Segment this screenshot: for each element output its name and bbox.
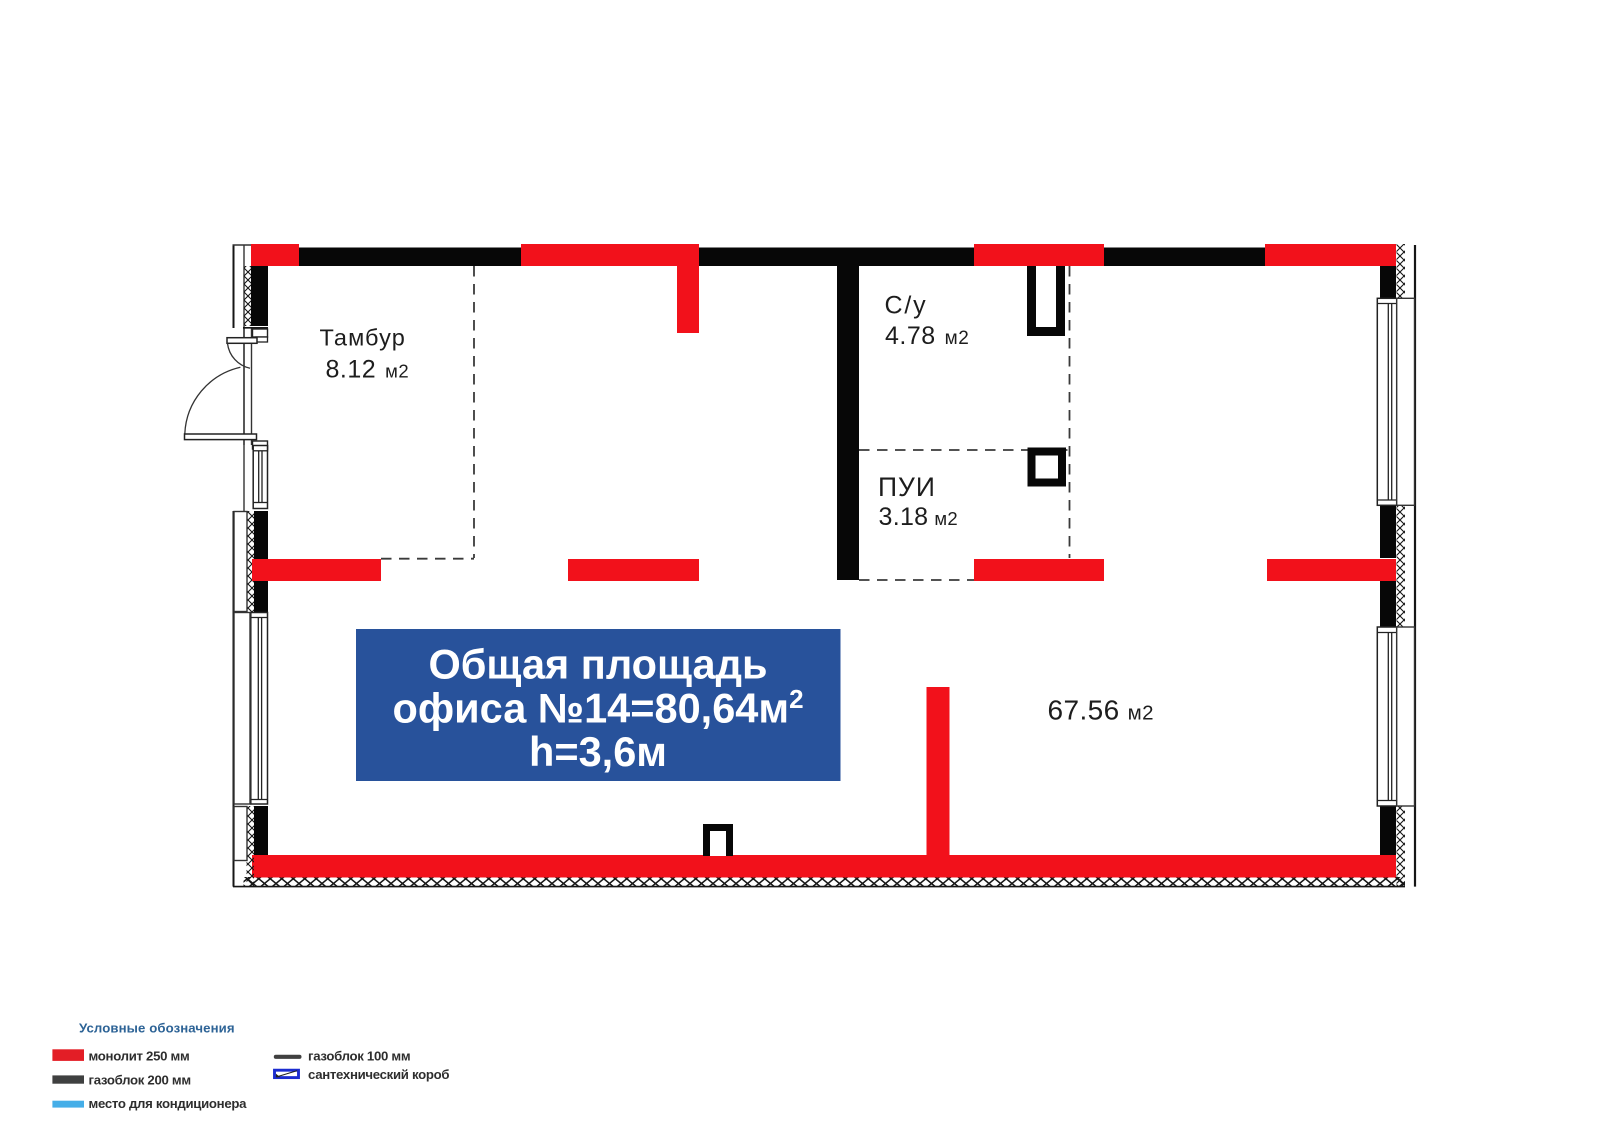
svg-text:монолит 250 мм: монолит 250 мм	[89, 1049, 190, 1064]
svg-text:3.18м2: 3.18м2	[879, 503, 958, 531]
svg-text:Тамбур: Тамбур	[320, 325, 406, 351]
svg-text:С/у: С/у	[885, 292, 928, 320]
svg-text:h=3,6м: h=3,6м	[529, 728, 667, 775]
svg-text:сантехнический короб: сантехнический короб	[308, 1067, 449, 1082]
svg-text:место для кондиционера: место для кондиционера	[89, 1096, 248, 1111]
svg-text:ПУИ: ПУИ	[878, 472, 936, 502]
svg-text:газоблок 100 мм: газоблок 100 мм	[308, 1049, 410, 1064]
svg-text:газоблок 200 мм: газоблок 200 мм	[89, 1073, 191, 1088]
svg-text:офиса №14=80,64м2: офиса №14=80,64м2	[392, 684, 803, 732]
svg-text:Условные обозначения: Условные обозначения	[79, 1021, 235, 1036]
svg-text:Общая площадь: Общая площадь	[429, 641, 768, 688]
svg-text:8.12м2: 8.12м2	[326, 356, 410, 384]
